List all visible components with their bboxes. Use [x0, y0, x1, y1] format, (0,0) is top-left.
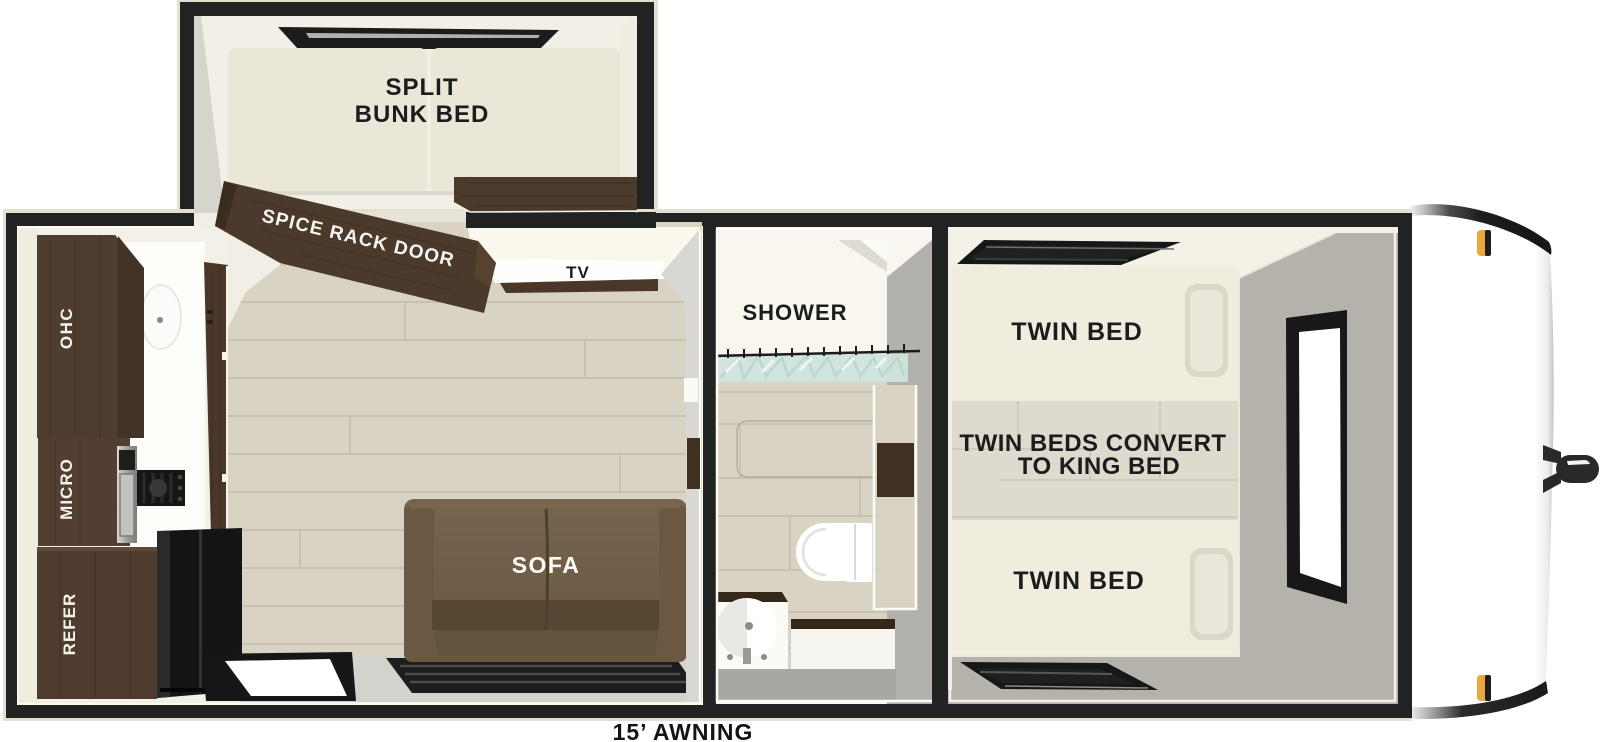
svg-text:TO KING BED: TO KING BED: [1018, 453, 1180, 480]
svg-text:SPLIT: SPLIT: [385, 74, 458, 101]
svg-text:MICRO: MICRO: [57, 458, 76, 520]
svg-text:BUNK BED: BUNK BED: [355, 101, 490, 128]
svg-text:TWIN BED: TWIN BED: [1011, 318, 1143, 346]
svg-text:OHC: OHC: [57, 307, 76, 349]
svg-text:SOFA: SOFA: [512, 552, 581, 578]
svg-text:TV: TV: [566, 263, 590, 282]
svg-text:REFER: REFER: [60, 593, 79, 656]
svg-text:SHOWER: SHOWER: [743, 300, 848, 325]
svg-text:15’ AWNING: 15’ AWNING: [613, 719, 754, 742]
svg-text:TWIN BED: TWIN BED: [1013, 567, 1145, 595]
